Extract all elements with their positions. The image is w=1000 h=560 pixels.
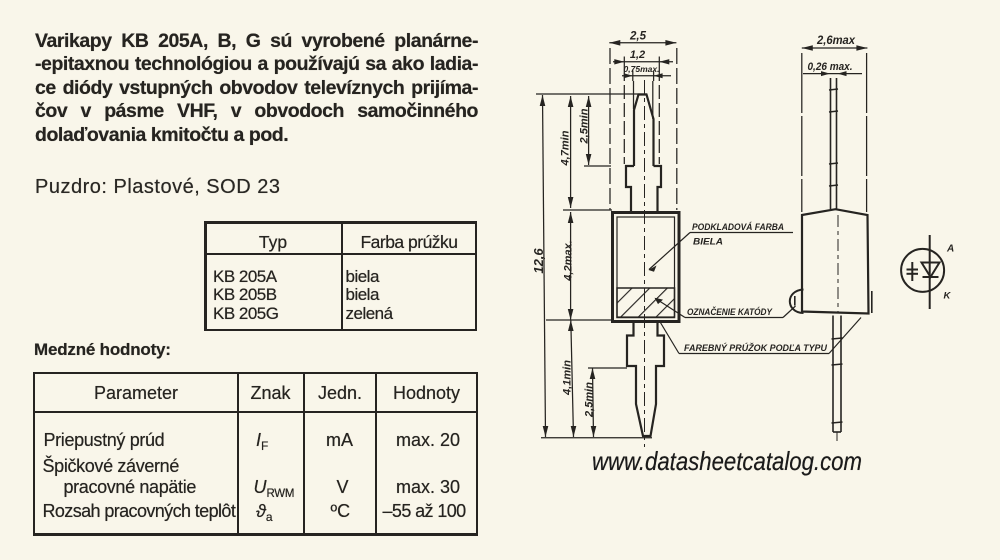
svg-text:1,2: 1,2 [630,49,645,61]
svg-text:A: A [946,244,954,255]
svg-text:FAREBNÝ PRÚŽOK PODĽA TYPU: FAREBNÝ PRÚŽOK PODĽA TYPU [684,342,828,354]
svg-text:0,26 max.: 0,26 max. [808,61,853,73]
svg-text:12,6: 12,6 [531,248,546,274]
svg-text:0,75max.: 0,75max. [624,64,660,74]
svg-text:2,5min: 2,5min [584,382,596,418]
svg-text:2,6max: 2,6max [816,33,856,47]
svg-text:4,1min: 4,1min [562,360,574,396]
svg-text:2,5min: 2,5min [579,108,591,144]
svg-text:2,5: 2,5 [629,31,647,43]
svg-text:OZNAČENIE KATÓDY: OZNAČENIE KATÓDY [687,306,773,318]
svg-text:4,7min: 4,7min [560,130,572,166]
svg-text:BIELA: BIELA [693,237,723,248]
svg-text:K: K [944,291,952,302]
svg-text:PODKLADOVÁ FARBA: PODKLADOVÁ FARBA [692,222,784,233]
svg-text:4,2max.: 4,2max. [563,240,575,281]
